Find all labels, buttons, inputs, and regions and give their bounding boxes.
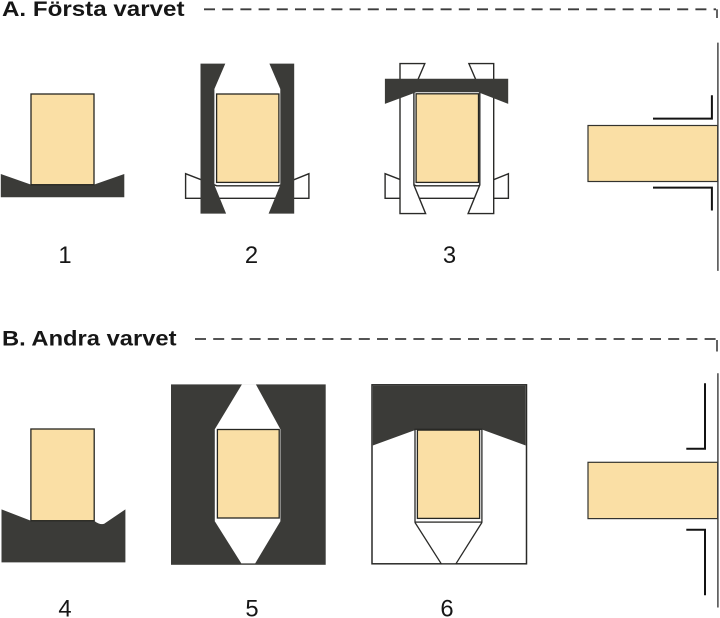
svg-text:1: 1	[58, 242, 71, 269]
svg-text:6: 6	[440, 596, 453, 618]
svg-text:5: 5	[245, 596, 258, 618]
svg-text:2: 2	[245, 242, 258, 269]
svg-text:4: 4	[58, 596, 71, 618]
svg-text:B. Andra varvet: B. Andra varvet	[2, 325, 177, 350]
svg-text:3: 3	[443, 242, 456, 269]
svg-text:A. Första varvet: A. Första varvet	[2, 0, 185, 21]
